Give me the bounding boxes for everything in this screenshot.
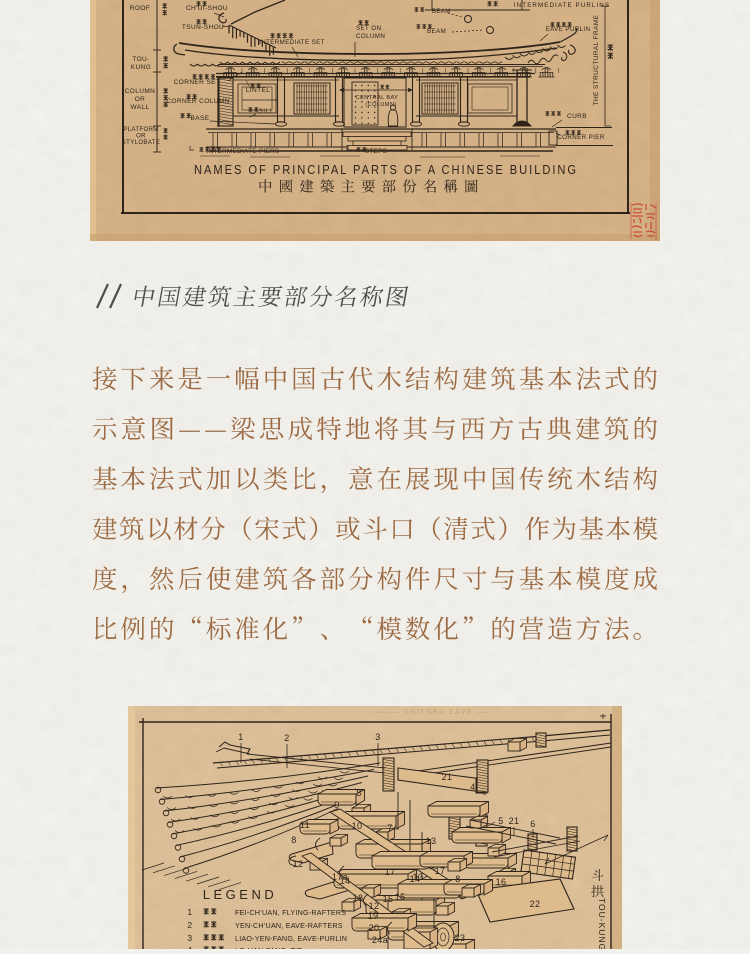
svg-text:STYLOBATE: STYLOBATE xyxy=(122,140,161,146)
svg-text:KUNG: KUNG xyxy=(131,64,151,71)
svg-text:22: 22 xyxy=(530,899,541,909)
svg-text:OR: OR xyxy=(136,134,146,140)
svg-text:CORNER COLUMN: CORNER COLUMN xyxy=(166,98,229,105)
svg-text:17: 17 xyxy=(385,867,396,877)
svg-text:CH'UI-SHOU: CH'UI-SHOU xyxy=(186,5,228,12)
svg-text:13: 13 xyxy=(426,836,437,846)
svg-text:⸺⸺ SNITNEd-EAVE ⸺: ⸺⸺ SNITNEd-EAVE ⸺ xyxy=(374,709,490,716)
svg-text:SILL: SILL xyxy=(259,108,274,115)
svg-text:3: 3 xyxy=(375,732,380,742)
svg-text:6: 6 xyxy=(530,819,535,829)
svg-text:14: 14 xyxy=(410,874,421,884)
svg-text:NAMES OF PRINCIPAL PARTS OF A: NAMES OF PRINCIPAL PARTS OF A CHINESE BU… xyxy=(194,163,578,177)
svg-text:BASE: BASE xyxy=(191,115,210,122)
svg-text:18: 18 xyxy=(353,893,364,903)
svg-text:FEI-CH’UAN, FLYING-RAFTERS: FEI-CH’UAN, FLYING-RAFTERS xyxy=(235,908,346,917)
svg-text:INTERMEDIATE SET: INTERMEDIATE SET xyxy=(259,39,325,46)
svg-text:15: 15 xyxy=(395,892,406,902)
svg-text:CURB: CURB xyxy=(567,113,587,120)
svg-text:BEAM: BEAM xyxy=(432,9,451,15)
svg-text:TOU-: TOU- xyxy=(132,56,149,63)
svg-text:CENTRAL BAY: CENTRAL BAY xyxy=(356,95,399,101)
svg-text:INTERMEDIATE PURLINS: INTERMEDIATE PURLINS xyxy=(514,2,610,9)
svg-text:SET ON: SET ON xyxy=(356,25,381,32)
svg-text:LIAO-YEN-FANG, EAVE-PURLIN: LIAO-YEN-FANG, EAVE-PURLIN xyxy=(235,934,347,943)
svg-text:8: 8 xyxy=(356,788,361,798)
svg-text:21: 21 xyxy=(509,816,520,826)
svg-text:WALL: WALL xyxy=(130,104,149,111)
svg-text:4: 4 xyxy=(470,782,475,792)
svg-text:4: 4 xyxy=(187,945,192,949)
svg-text:23: 23 xyxy=(455,933,466,943)
svg-text:10: 10 xyxy=(352,821,363,831)
svg-text:5: 5 xyxy=(498,816,503,826)
svg-text:14: 14 xyxy=(340,876,351,886)
svg-text:12: 12 xyxy=(369,901,380,911)
svg-text:STEPS: STEPS xyxy=(365,148,387,155)
svg-text:YEN-CH’UAN, EAVE-RAFTERS: YEN-CH’UAN, EAVE-RAFTERS xyxy=(235,921,343,930)
svg-text:LINTEL: LINTEL xyxy=(246,87,270,94)
svg-text:CORNER PIER: CORNER PIER xyxy=(557,134,605,141)
svg-text:CORNER SET: CORNER SET xyxy=(174,79,221,86)
svg-text:1: 1 xyxy=(187,907,192,917)
svg-text:7: 7 xyxy=(387,823,392,833)
svg-text:19: 19 xyxy=(368,911,379,921)
svg-text:(COLUMN): (COLUMN) xyxy=(365,102,396,108)
svg-text:COLUMN: COLUMN xyxy=(125,88,156,95)
svg-text:3: 3 xyxy=(187,933,192,943)
svg-text:9: 9 xyxy=(334,800,339,810)
svg-text:PLATFORM: PLATFORM xyxy=(123,127,158,133)
svg-text:TSUN-SHOU: TSUN-SHOU xyxy=(182,24,224,31)
svg-text:ROOF: ROOF xyxy=(130,5,150,12)
svg-text:15: 15 xyxy=(383,894,394,904)
svg-text:TOU-KUNG: TOU-KUNG xyxy=(597,898,607,949)
svg-text:THE STRUCTURAL FRAME: THE STRUCTURAL FRAME xyxy=(593,14,600,105)
svg-text:OR: OR xyxy=(135,96,146,103)
svg-text:24a: 24a xyxy=(372,935,388,945)
svg-text:20: 20 xyxy=(369,923,380,933)
svg-text:2: 2 xyxy=(284,733,289,743)
svg-text:2: 2 xyxy=(187,920,192,930)
svg-text:21: 21 xyxy=(442,772,453,782)
svg-text:11: 11 xyxy=(300,820,310,830)
svg-text:8: 8 xyxy=(455,874,460,884)
svg-text:COLUMN: COLUMN xyxy=(356,33,385,40)
svg-text:LEGEND: LEGEND xyxy=(203,887,277,902)
svg-text:16: 16 xyxy=(496,877,507,887)
svg-text:8: 8 xyxy=(291,835,296,845)
svg-text:12: 12 xyxy=(293,859,304,869)
svg-text:17: 17 xyxy=(435,866,446,876)
svg-text:1: 1 xyxy=(238,732,243,742)
